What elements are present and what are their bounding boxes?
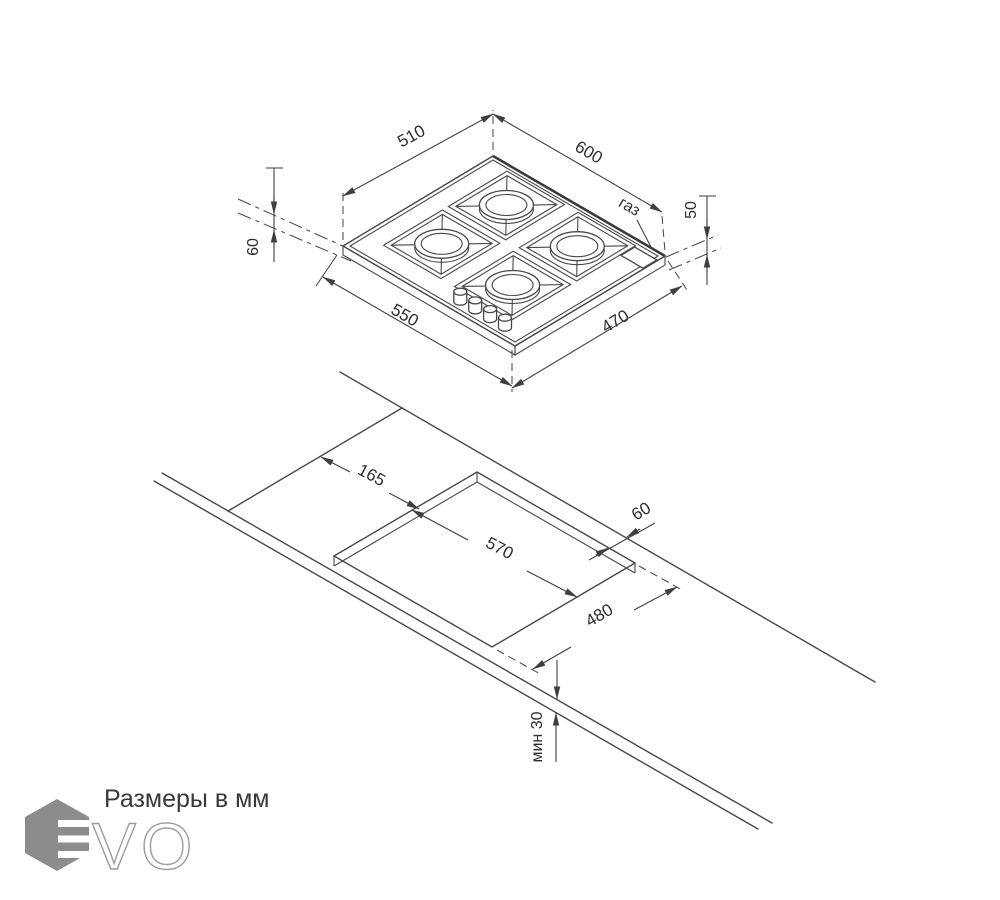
dim-510-label: 510	[394, 121, 428, 151]
dim-510: 510	[343, 110, 493, 240]
dim-570: 570	[412, 510, 577, 597]
drawing-page: 165 570 60 480 мин 30	[0, 0, 1000, 900]
evo-logo: VO	[25, 799, 197, 883]
dim-470-label: 470	[598, 306, 632, 337]
dim-480-label: 480	[582, 600, 616, 631]
knob-icon	[454, 288, 467, 295]
hob-front-right-face	[515, 256, 665, 355]
dim-480: 480	[497, 566, 684, 675]
logo-e-bar	[58, 820, 89, 827]
gas-inlet-plate	[621, 247, 657, 268]
dim-165: 165	[321, 457, 419, 509]
dim-570-label: 570	[483, 533, 517, 563]
dim-50-height: 50	[666, 196, 721, 285]
knob-icon	[484, 306, 497, 313]
dim-60-height-label: 60	[245, 238, 262, 256]
burner-left	[384, 210, 500, 279]
dim-60-rear: 60	[589, 498, 655, 560]
burner-back	[448, 171, 564, 240]
logo-hexagon-icon	[25, 799, 89, 871]
dim-550-label: 550	[388, 300, 422, 331]
hob-isometric-view: газ 510 600 550 470	[238, 110, 721, 392]
knob-icon	[469, 297, 482, 304]
logo-e-bar	[58, 851, 89, 858]
dim-165-label: 165	[355, 460, 389, 490]
logo-e-bar	[58, 836, 89, 843]
knob-icon	[499, 314, 512, 321]
logo-letters: VO	[92, 809, 197, 883]
technical-drawing: 165 570 60 480 мин 30	[0, 0, 1000, 900]
worktop-front-edge	[162, 473, 772, 823]
dim-min30-label: мин 30	[529, 711, 546, 762]
dim-60-height: 60	[238, 168, 351, 262]
worktop-back-edge	[340, 372, 875, 682]
dim-60-rear-label: 60	[628, 498, 654, 524]
dim-50-height-label: 50	[683, 201, 700, 219]
burner-right	[519, 212, 635, 281]
worktop-cutout-view: 165 570 60 480 мин 30	[154, 372, 875, 829]
worktop-left-break-edge	[228, 408, 402, 511]
